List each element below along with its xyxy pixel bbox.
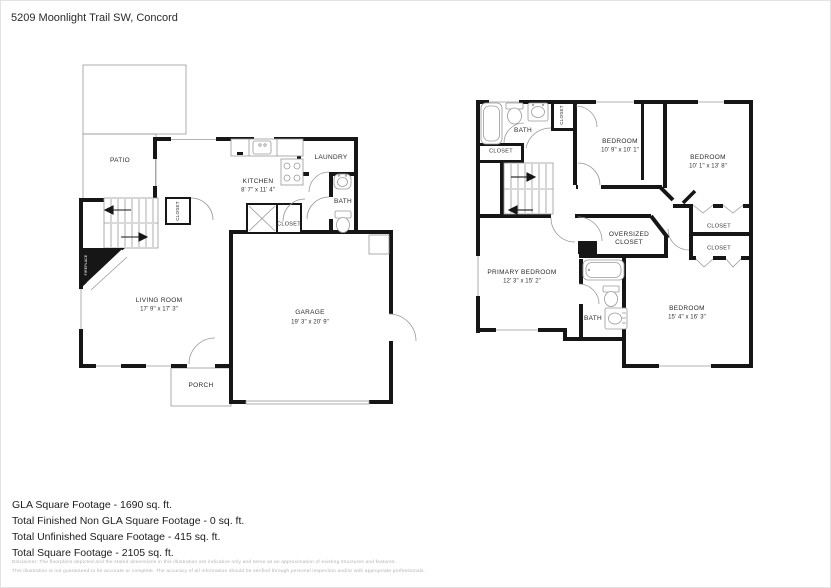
- garage-door: [246, 401, 369, 404]
- room-label-living-room: LIVING ROOM: [136, 297, 183, 305]
- room-label-bedroom-1: BEDROOM: [602, 138, 638, 146]
- room-label-patio: PATIO: [110, 157, 130, 165]
- room-label-kitchen: KITCHEN: [243, 178, 274, 186]
- floorplan-page: 5209 Moonlight Trail SW, Concord: [0, 0, 831, 588]
- patio-outline: [83, 65, 186, 201]
- room-dims-bedroom-1: 10' 9" x 10' 1": [601, 147, 639, 155]
- stairs: [504, 163, 553, 214]
- utility-box: [369, 235, 389, 254]
- room-label-closet-right-2: CLOSET: [707, 246, 731, 253]
- summary-line-gla: GLA Square Footage - 1690 sq. ft.: [12, 497, 244, 513]
- disclaimer-line-1: Disclaimer: The floorplans depicted and …: [12, 560, 396, 565]
- disclaimer-line-2: This illustration is not guaranteed to b…: [12, 569, 425, 574]
- toilet-icon: [506, 103, 523, 124]
- door-arcs: [189, 172, 416, 364]
- page-title: 5209 Moonlight Trail SW, Concord: [11, 12, 178, 24]
- first-floor-plan-drawing: [79, 61, 419, 436]
- sink-icon: [528, 103, 548, 121]
- room-label-porch: PORCH: [189, 382, 214, 390]
- sink-icon: [605, 308, 627, 329]
- room-dims-kitchen: 8' 7" x 11' 4": [241, 187, 275, 195]
- summary-line-non-gla: Total Finished Non GLA Square Footage - …: [12, 513, 244, 529]
- room-dims-bedroom-3: 15' 4" x 16' 3": [668, 314, 706, 322]
- room-label-stair-closet: CLOSET: [175, 201, 181, 221]
- stairs: [104, 198, 158, 248]
- room-label-closet-small: CLOSET: [559, 105, 565, 125]
- room-label-primary-bedroom: PRIMARY BEDROOM: [487, 269, 556, 277]
- room-label-bedroom-3: BEDROOM: [669, 305, 705, 313]
- room-label-bath-1: BATH: [334, 198, 352, 206]
- room-dims-living-room: 17' 9" x 17' 3": [140, 306, 178, 314]
- square-footage-summary: GLA Square Footage - 1690 sq. ft. Total …: [12, 497, 244, 561]
- room-label-oversized-closet: OVERSIZED CLOSET: [605, 231, 653, 247]
- room-label-closet-hall: CLOSET: [489, 149, 513, 156]
- bathtub-icon: [481, 103, 502, 144]
- bathtub-icon: [583, 260, 624, 280]
- room-label-laundry: LAUNDRY: [314, 154, 347, 162]
- room-label-bath-upper: BATH: [514, 127, 532, 135]
- room-label-bath-lower: BATH: [584, 315, 602, 323]
- room-dims-bedroom-2: 10' 1" x 13' 8": [689, 163, 727, 171]
- room-dims-garage: 19' 3" x 20' 9": [291, 319, 329, 327]
- room-dims-primary-bedroom: 12' 3" x 15' 2": [503, 278, 541, 286]
- summary-line-unfinished: Total Unfinished Square Footage - 415 sq…: [12, 529, 244, 545]
- room-label-garage: GARAGE: [295, 309, 325, 317]
- room-label-bedroom-2: BEDROOM: [690, 154, 726, 162]
- kitchen-closet-box: [247, 204, 301, 233]
- room-label-closet-right-1: CLOSET: [707, 224, 731, 231]
- summary-line-total: Total Square Footage - 2105 sq. ft.: [12, 545, 244, 561]
- kitchen-counter: [231, 139, 303, 156]
- toilet-icon: [603, 286, 619, 307]
- room-label-fireplace: FIREPLACE: [84, 255, 88, 276]
- toilet-icon: [335, 211, 351, 233]
- room-label-kitchen-closet: CLOSET: [277, 222, 301, 229]
- sink-icon: [334, 174, 351, 189]
- stove-icon: [281, 159, 303, 185]
